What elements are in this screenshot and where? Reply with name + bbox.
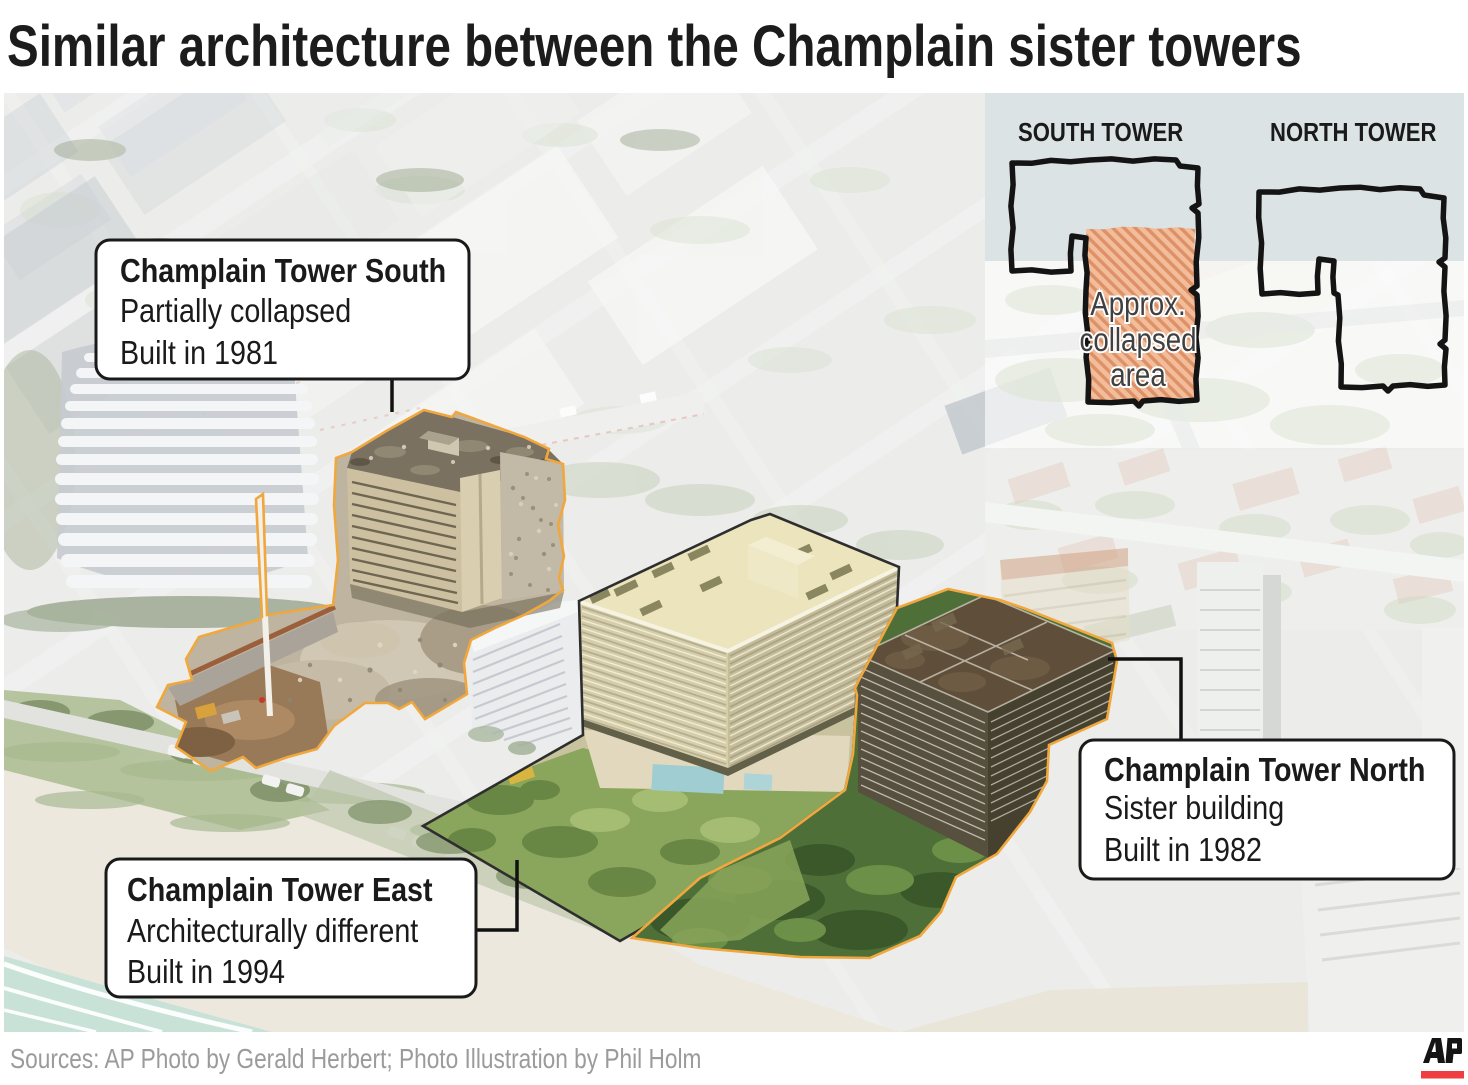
svg-text:Architecturally different: Architecturally different bbox=[127, 912, 419, 949]
svg-text:Similar architecture between t: Similar architecture between the Champla… bbox=[7, 15, 1302, 80]
svg-text:SOUTH TOWER: SOUTH TOWER bbox=[1018, 118, 1183, 147]
svg-text:Built in 1982: Built in 1982 bbox=[1104, 831, 1262, 868]
svg-text:Built in 1994: Built in 1994 bbox=[127, 953, 285, 990]
svg-text:Sources: AP Photo by Gerald He: Sources: AP Photo by Gerald Herbert; Pho… bbox=[10, 1044, 701, 1075]
svg-text:Champlain Tower North: Champlain Tower North bbox=[1104, 751, 1425, 788]
svg-text:collapsed: collapsed bbox=[1079, 322, 1196, 359]
svg-text:Partially collapsed: Partially collapsed bbox=[120, 292, 351, 329]
svg-text:Approx.: Approx. bbox=[1090, 286, 1186, 323]
svg-text:Built in 1981: Built in 1981 bbox=[120, 334, 278, 371]
svg-text:Champlain Tower East: Champlain Tower East bbox=[127, 871, 433, 908]
svg-text:NORTH TOWER: NORTH TOWER bbox=[1270, 118, 1436, 147]
svg-text:area: area bbox=[1110, 357, 1166, 394]
svg-text:Champlain Tower South: Champlain Tower South bbox=[120, 252, 446, 289]
svg-text:Sister building: Sister building bbox=[1104, 789, 1284, 826]
